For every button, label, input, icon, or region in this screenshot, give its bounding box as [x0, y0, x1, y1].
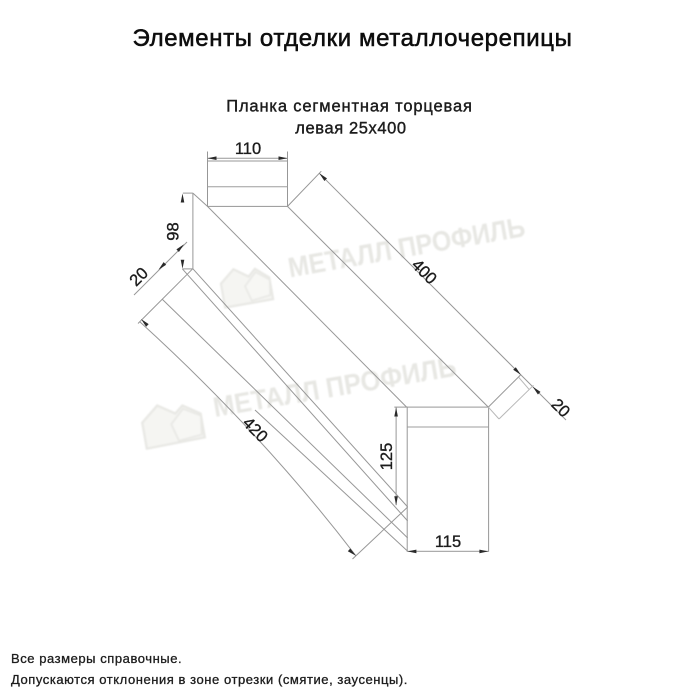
- svg-text:Допускаются отклонения в зоне: Допускаются отклонения в зоне отрезки (с…: [11, 672, 408, 687]
- svg-text:125: 125: [378, 443, 396, 471]
- svg-text:98: 98: [164, 222, 182, 240]
- svg-text:Элементы отделки металлочерепи: Элементы отделки металлочерепицы: [133, 25, 573, 52]
- svg-text:20: 20: [126, 264, 152, 290]
- svg-text:110: 110: [235, 140, 261, 158]
- svg-text:420: 420: [239, 414, 271, 446]
- svg-text:МЕТАЛЛ ПРОФИЛЬ: МЕТАЛЛ ПРОФИЛЬ: [211, 351, 459, 423]
- svg-text:Все размеры справочные.: Все размеры справочные.: [11, 651, 182, 666]
- svg-text:20: 20: [548, 395, 574, 421]
- svg-text:левая 25х400: левая 25х400: [295, 119, 406, 137]
- svg-text:115: 115: [435, 533, 461, 551]
- svg-text:Планка сегментная торцевая: Планка сегментная торцевая: [226, 98, 473, 116]
- svg-text:МЕТАЛЛ ПРОФИЛЬ: МЕТАЛЛ ПРОФИЛЬ: [286, 211, 528, 283]
